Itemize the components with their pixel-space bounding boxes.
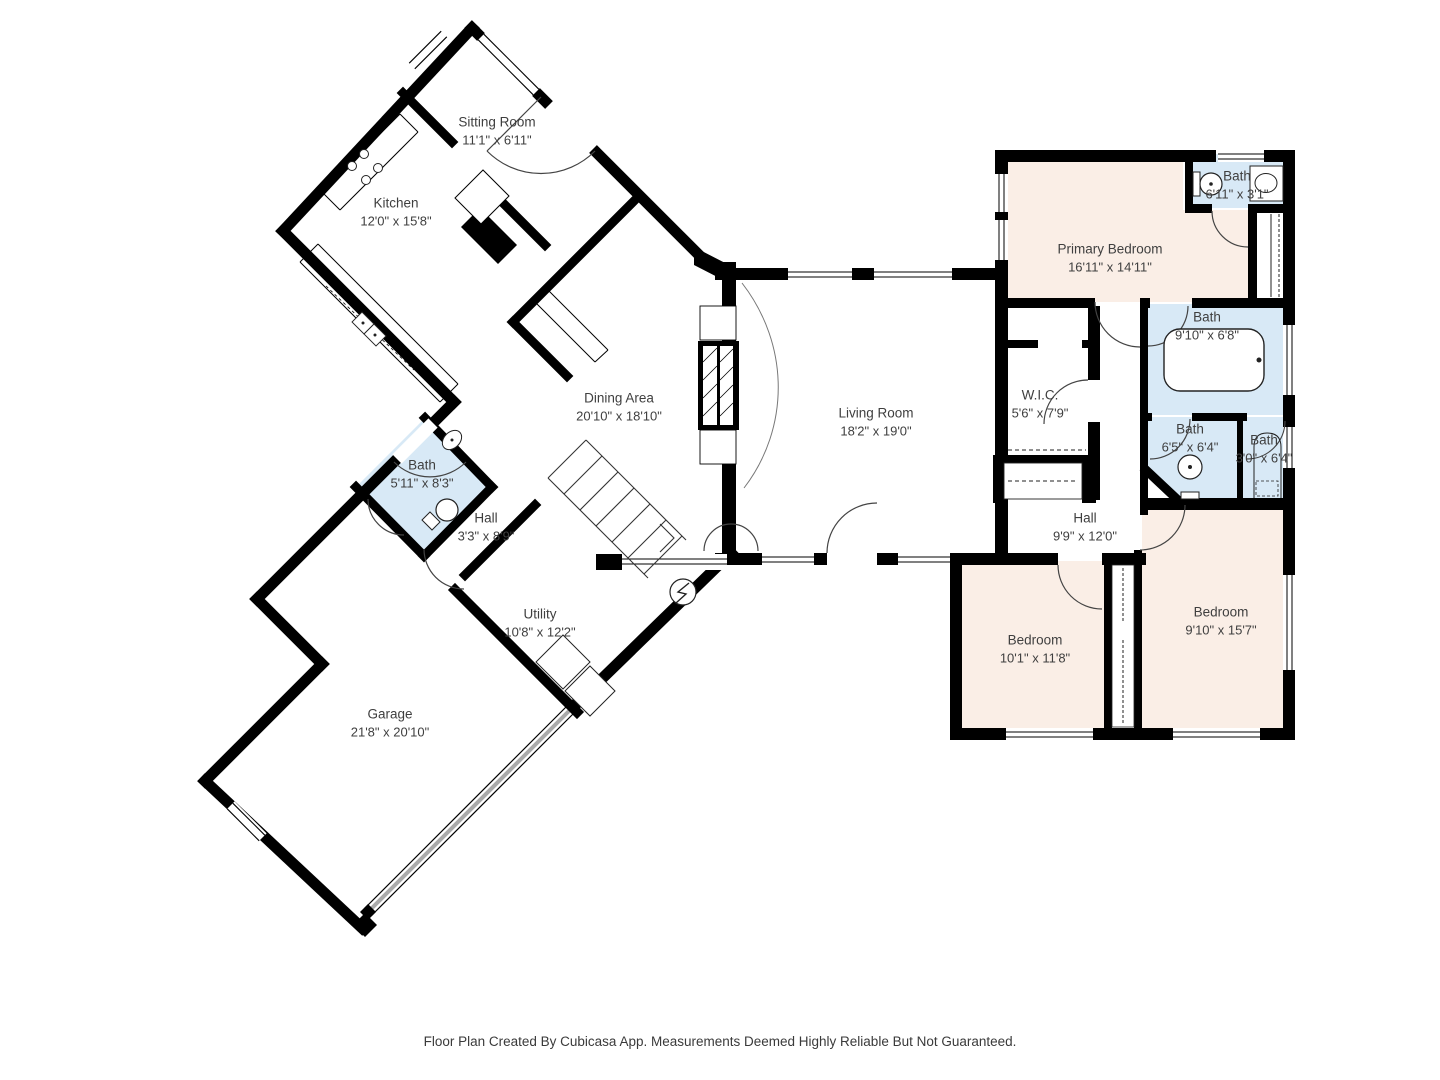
room-dims: 9'10" x 6'8" [1175,326,1239,343]
electrical-panel-icon [670,579,696,605]
room-dims: 5'6" x 7'9" [1012,404,1069,421]
room-label-hall-right: Hall9'9" x 12'0" [1053,509,1117,544]
room-label-hall-left: Hall3'3" x 8'9" [458,509,515,544]
room-name: Garage [351,705,430,723]
room-dims: 6'5" x 6'4" [1162,438,1219,455]
room-dims: 21'8" x 20'10" [351,723,430,740]
room-dims: 9'9" x 12'0" [1053,527,1117,544]
room-dims: 18'2" x 19'0" [838,422,913,439]
room-label-bath-left: Bath5'11" x 8'3" [390,456,453,491]
room-name: Bath [1236,431,1293,449]
room-name: Utility [504,605,575,623]
room-name: Bath [390,456,453,474]
footer-note: Floor Plan Created By Cubicasa App. Meas… [0,1034,1440,1049]
floor-plan-page: Sitting Room11'1" x 6'11" Kitchen12'0" x… [0,0,1440,1080]
room-label-primary-bedroom: Primary Bedroom16'11" x 14'11" [1057,240,1162,275]
bathtub-faucet [1257,358,1262,363]
room-label-bedroom-left: Bedroom10'1" x 11'8" [1000,631,1070,666]
room-name: Hall [1053,509,1117,527]
room-name: Kitchen [360,194,431,212]
room-dims: 10'1" x 11'8" [1000,649,1070,666]
room-label-bath-top-right: Bath6'11" x 3'1" [1205,167,1268,202]
room-label-sitting-room: Sitting Room11'1" x 6'11" [458,113,535,148]
room-name: Bath [1175,308,1239,326]
room-dims: 16'11" x 14'11" [1057,258,1162,275]
room-label-bath-large: Bath9'10" x 6'8" [1175,308,1239,343]
room-dims: 9'10" x 15'7" [1185,621,1256,638]
room-dims: 20'10" x 18'10" [576,407,662,424]
room-name: Hall [458,509,515,527]
room-label-living-room: Living Room18'2" x 19'0" [838,404,913,439]
room-name: Bath [1205,167,1268,185]
room-label-bedroom-right: Bedroom9'10" x 15'7" [1185,603,1256,638]
room-name: Living Room [838,404,913,422]
room-label-dining-area: Dining Area20'10" x 18'10" [576,389,662,424]
room-label-kitchen: Kitchen12'0" x 15'8" [360,194,431,229]
floor-plan-drawing [0,0,1440,1080]
room-label-wic: W.I.C.5'6" x 7'9" [1012,386,1069,421]
room-dims: 12'0" x 15'8" [360,212,431,229]
room-name: Dining Area [576,389,662,407]
room-name: Bath [1162,420,1219,438]
room-name: Bedroom [1000,631,1070,649]
room-dims: 6'11" x 3'1" [1205,185,1268,202]
room-dims: 5'11" x 8'3" [390,474,453,491]
room-label-bath-30: Bath3'0" x 6'4" [1236,431,1293,466]
room-dims: 3'3" x 8'9" [458,527,515,544]
room-name: Bedroom [1185,603,1256,621]
room-label-utility: Utility10'8" x 12'2" [504,605,575,640]
room-label-garage: Garage21'8" x 20'10" [351,705,430,740]
room-dims: 10'8" x 12'2" [504,623,575,640]
room-dims: 11'1" x 6'11" [458,131,535,148]
room-dims: 3'0" x 6'4" [1236,449,1293,466]
room-name: Sitting Room [458,113,535,131]
room-label-bath-65: Bath6'5" x 6'4" [1162,420,1219,455]
room-name: Primary Bedroom [1057,240,1162,258]
room-name: W.I.C. [1012,386,1069,404]
